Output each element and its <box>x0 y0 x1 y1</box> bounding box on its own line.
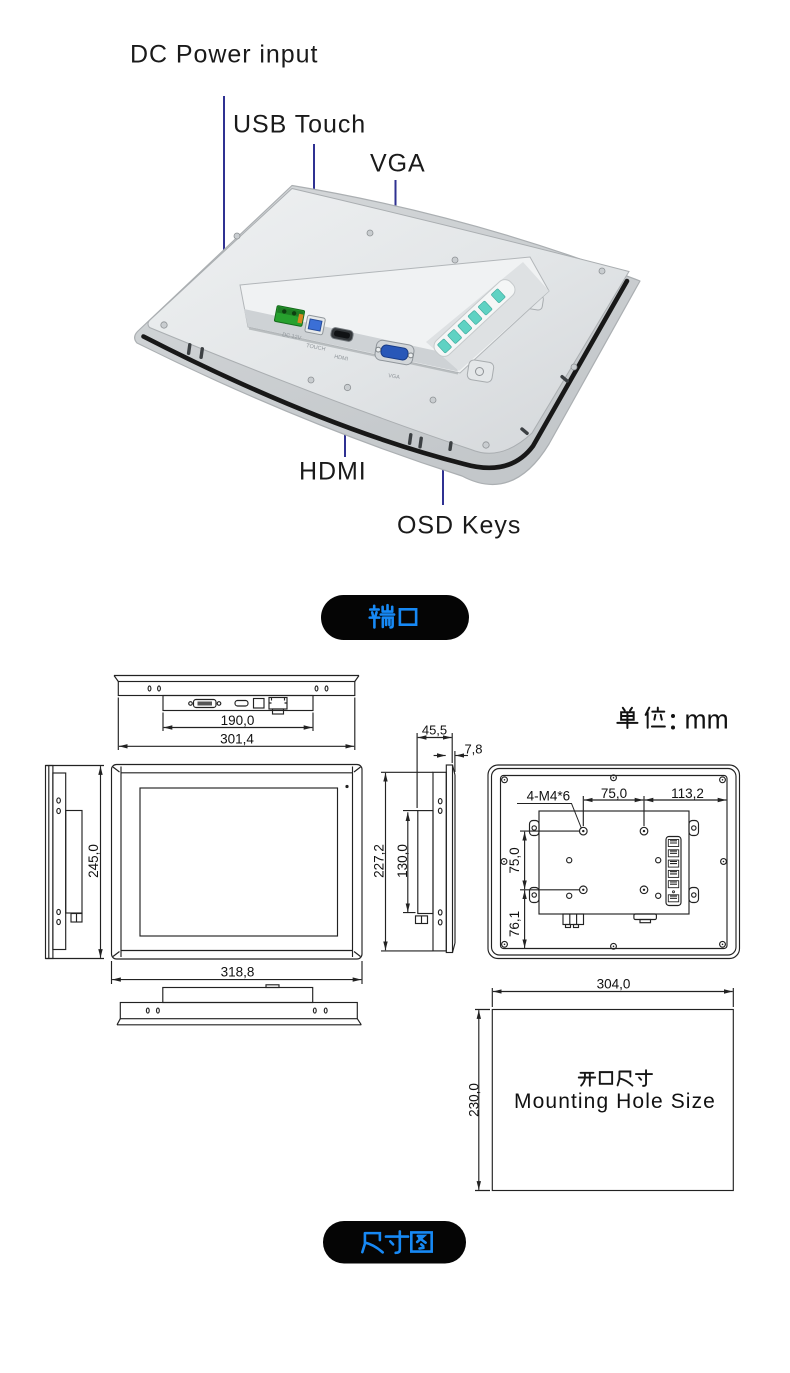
svg-text:130,0: 130,0 <box>395 844 410 878</box>
svg-text:227,2: 227,2 <box>372 844 387 878</box>
svg-text:230,0: 230,0 <box>467 1083 482 1117</box>
svg-text:245,0: 245,0 <box>86 844 101 878</box>
svg-text:190,0: 190,0 <box>221 713 255 728</box>
svg-text:45,5: 45,5 <box>422 723 447 738</box>
svg-text:301,4: 301,4 <box>220 731 254 746</box>
svg-text:7,8: 7,8 <box>464 742 482 757</box>
svg-text:75,0: 75,0 <box>601 786 627 801</box>
svg-text:VGA: VGA <box>370 150 426 178</box>
svg-text:mm: mm <box>685 705 729 735</box>
svg-text:USB Touch: USB Touch <box>233 111 366 139</box>
svg-text:OSD Keys: OSD Keys <box>397 512 521 540</box>
svg-text:318,8: 318,8 <box>221 965 255 980</box>
svg-text:4-M4*6: 4-M4*6 <box>527 789 571 804</box>
svg-text:HDMI: HDMI <box>299 458 367 486</box>
svg-text:304,0: 304,0 <box>597 977 631 992</box>
svg-text:113,2: 113,2 <box>671 786 704 801</box>
svg-text:76,1: 76,1 <box>507 911 522 937</box>
svg-text:Mounting Hole Size: Mounting Hole Size <box>514 1090 716 1113</box>
svg-text:75,0: 75,0 <box>507 847 522 873</box>
svg-text:DC Power input: DC Power input <box>130 41 318 69</box>
